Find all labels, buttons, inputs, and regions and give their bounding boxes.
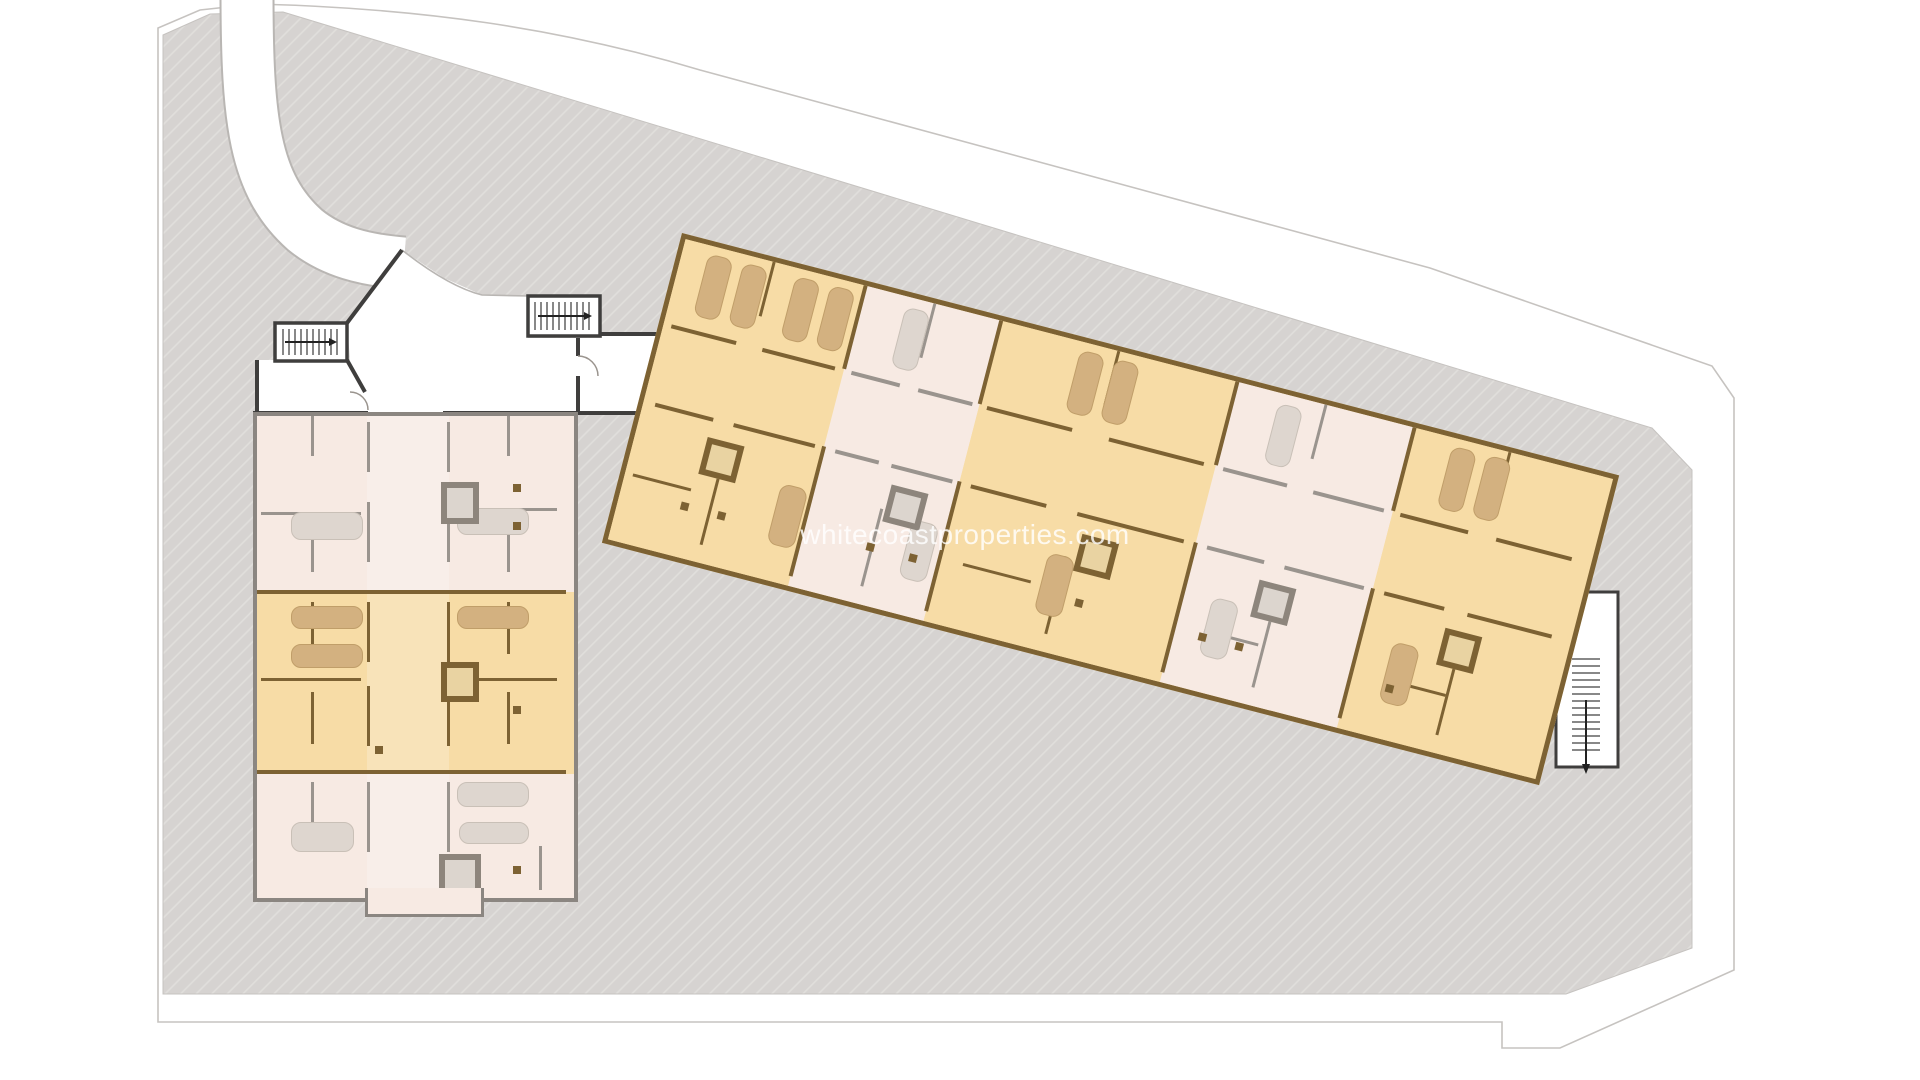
structural-column <box>513 522 521 530</box>
structural-column <box>513 706 521 714</box>
partition-wall <box>257 770 566 774</box>
partition-wall <box>507 692 510 744</box>
bed <box>291 512 363 540</box>
structural-column <box>513 484 521 492</box>
partition-wall <box>311 692 314 744</box>
west-building <box>253 412 578 902</box>
partition-wall <box>507 416 510 456</box>
partition-wall <box>367 422 370 472</box>
bed <box>291 822 354 852</box>
structural-column <box>513 866 521 874</box>
bed <box>459 822 529 844</box>
partition-wall <box>257 590 566 594</box>
bed <box>291 606 363 629</box>
partition-wall <box>447 422 450 472</box>
partition-wall <box>447 782 450 852</box>
partition-wall <box>311 782 314 826</box>
corridor <box>367 416 449 898</box>
partition-wall <box>261 678 361 681</box>
stairwell-west <box>275 323 347 361</box>
bed <box>457 606 529 629</box>
west-building-entry-protrusion <box>365 888 484 917</box>
partition-wall <box>367 686 370 746</box>
stairwell-north <box>528 296 600 336</box>
elevator-core <box>441 482 479 524</box>
floor-plan-canvas: whitecoastproperties.com <box>0 0 1920 1080</box>
bed <box>457 782 529 807</box>
entrance-vestibule <box>257 360 350 413</box>
watermark: whitecoastproperties.com <box>665 519 1265 551</box>
bed <box>291 644 363 668</box>
partition-wall <box>367 502 370 562</box>
partition-wall <box>367 782 370 852</box>
partition-wall <box>367 602 370 662</box>
partition-wall <box>311 416 314 456</box>
partition-wall <box>539 846 542 890</box>
partition-wall <box>447 602 450 662</box>
structural-column <box>375 746 383 754</box>
elevator-core <box>441 662 479 702</box>
